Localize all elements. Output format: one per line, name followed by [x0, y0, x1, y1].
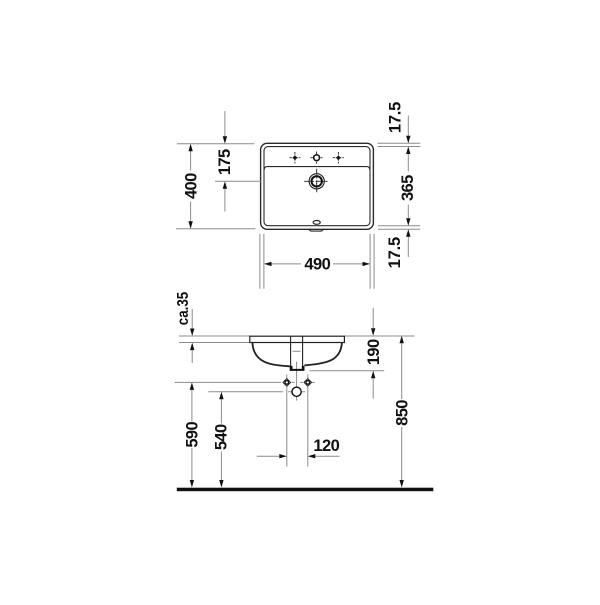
svg-text:17.5: 17.5: [386, 237, 404, 268]
svg-text:490: 490: [304, 255, 330, 273]
svg-text:120: 120: [313, 437, 339, 455]
svg-text:ca.35: ca.35: [175, 291, 192, 325]
svg-text:365: 365: [399, 175, 417, 201]
svg-text:17.5: 17.5: [386, 102, 404, 133]
svg-text:590: 590: [184, 422, 202, 448]
svg-text:850: 850: [394, 400, 412, 426]
svg-text:400: 400: [182, 173, 200, 199]
svg-text:540: 540: [213, 424, 231, 450]
svg-text:190: 190: [365, 339, 383, 365]
svg-text:175: 175: [216, 149, 234, 175]
